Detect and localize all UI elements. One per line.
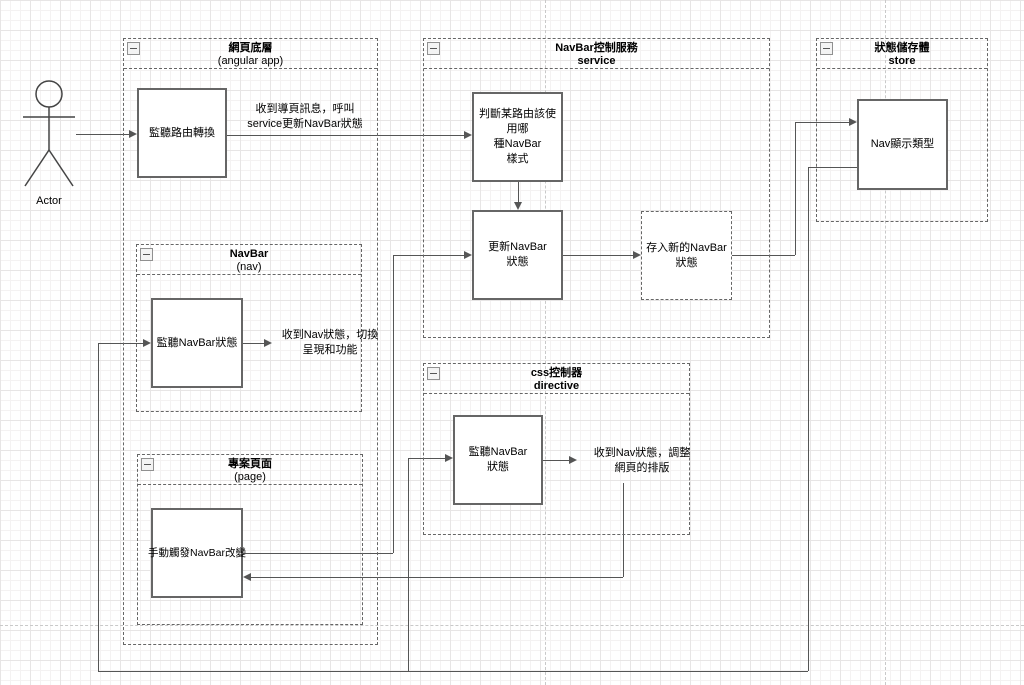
note-switch-display[interactable]: 收到Nav狀態，切換 呈現和功能 [268, 328, 392, 358]
actor-label: Actor [18, 195, 80, 207]
box-listen-nav-state[interactable]: 監聽NavBar狀態 [151, 298, 243, 388]
container-service-title: NavBar控制服務 service [424, 39, 769, 69]
box-listen-route[interactable]: 監聽路由轉換 [137, 88, 227, 178]
connector-save-to-navtype[interactable] [795, 122, 796, 255]
connector-manual-to-update[interactable] [393, 255, 394, 553]
actor-stick-figure-icon [18, 76, 80, 188]
box-nav-display-type[interactable]: Nav顯示類型 [857, 99, 948, 190]
diagram-canvas: 網頁底層 (angular app) NavBar控制服務 service 狀態… [0, 0, 1024, 685]
container-navbar-title: NavBar (nav) [137, 245, 361, 275]
container-directive-title: css控制器 directive [424, 364, 689, 394]
actor[interactable]: Actor [18, 76, 80, 207]
container-title: NavBar控制服務 [424, 41, 769, 55]
container-subtitle: (nav) [137, 261, 361, 274]
container-subtitle: directive [424, 380, 689, 393]
container-subtitle: (angular app) [124, 55, 377, 68]
connector-navtype-to-nav-listener[interactable] [98, 343, 99, 671]
container-title: css控制器 [424, 366, 689, 380]
box-update-state[interactable]: 更新NavBar 狀態 [472, 210, 563, 300]
box-manual-trigger[interactable]: 手動觸發NavBar改變 [151, 508, 243, 598]
connector-navtype-to-directive-listener[interactable] [408, 458, 409, 671]
container-store-title: 狀態儲存體 store [817, 39, 987, 69]
container-title: 狀態儲存體 [817, 41, 987, 55]
container-subtitle: (page) [138, 471, 362, 484]
connector-navtype-to-listeners[interactable] [98, 671, 808, 672]
container-title: 網頁底層 [124, 41, 377, 55]
container-title: 專案頁面 [138, 457, 362, 471]
box-save-state[interactable]: 存入新的NavBar 狀態 [641, 211, 732, 300]
connector-navtype-to-listeners[interactable] [808, 167, 809, 671]
container-web-title: 網頁底層 (angular app) [124, 39, 377, 69]
container-page-title: 專案頁面 (page) [138, 455, 362, 485]
note-adjust-layout[interactable]: 收到Nav狀態，調整 網頁的排版 [578, 446, 706, 476]
container-title: NavBar [137, 247, 361, 261]
box-listen-nav-directive[interactable]: 監聽NavBar 狀態 [453, 415, 543, 505]
container-subtitle: store [817, 55, 987, 68]
note-call-service[interactable]: 收到導頁訊息，呼叫 service更新NavBar狀態 [230, 102, 380, 132]
box-judge-route[interactable]: 判斷某路由該使用哪 種NavBar 樣式 [472, 92, 563, 182]
container-subtitle: service [424, 55, 769, 68]
